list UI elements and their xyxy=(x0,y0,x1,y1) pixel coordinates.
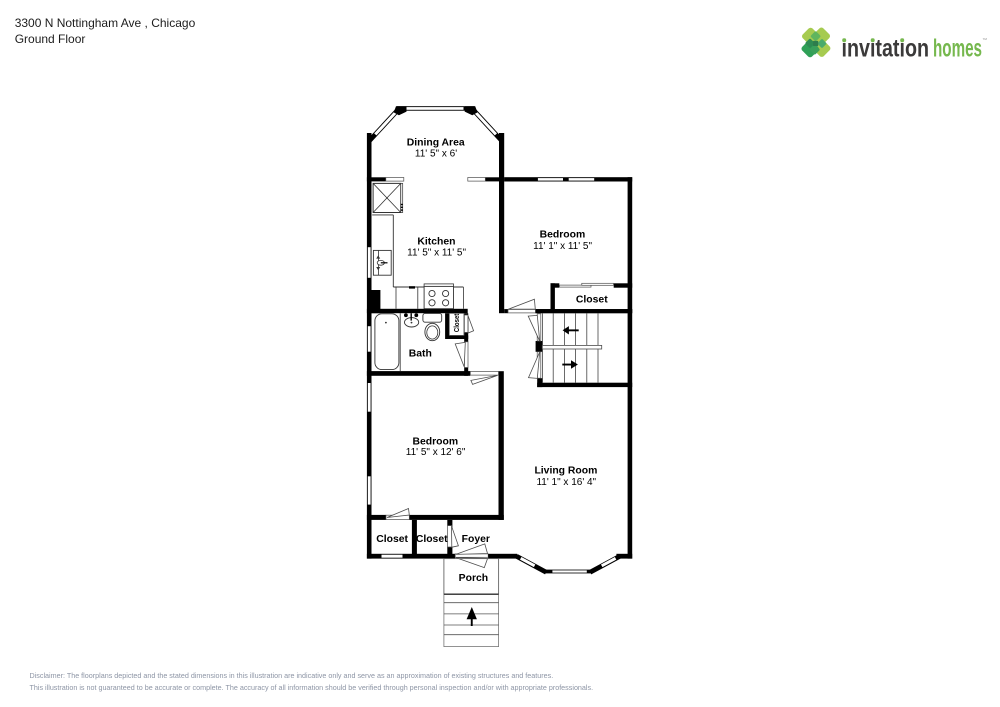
svg-text:Bedroom: Bedroom xyxy=(540,230,586,241)
svg-text:11' 1" x 11' 5": 11' 1" x 11' 5" xyxy=(533,241,592,252)
svg-text:homes: homes xyxy=(933,35,982,63)
svg-text:Closet: Closet xyxy=(576,295,608,306)
svg-text:Foyer: Foyer xyxy=(462,534,490,545)
svg-text:Kitchen: Kitchen xyxy=(417,236,455,247)
svg-text:11' 5" x 6': 11' 5" x 6' xyxy=(415,149,457,160)
svg-text:11' 5" x 11' 5": 11' 5" x 11' 5" xyxy=(407,248,466,259)
svg-text:™: ™ xyxy=(982,38,987,44)
svg-text:Living Room: Living Room xyxy=(534,466,597,477)
svg-text:11' 5" x 12' 6": 11' 5" x 12' 6" xyxy=(406,447,466,458)
svg-text:Dining Area: Dining Area xyxy=(407,138,465,149)
svg-text:11' 1" x 16' 4": 11' 1" x 16' 4" xyxy=(536,477,596,488)
svg-text:Porch: Porch xyxy=(459,573,488,584)
svg-text:Closet: Closet xyxy=(452,313,461,332)
svg-text:Closet: Closet xyxy=(416,534,448,545)
svg-text:invitation: invitation xyxy=(842,35,930,63)
svg-text:Bath: Bath xyxy=(409,348,432,359)
svg-text:Bedroom: Bedroom xyxy=(412,437,458,448)
svg-text:Closet: Closet xyxy=(376,534,408,545)
